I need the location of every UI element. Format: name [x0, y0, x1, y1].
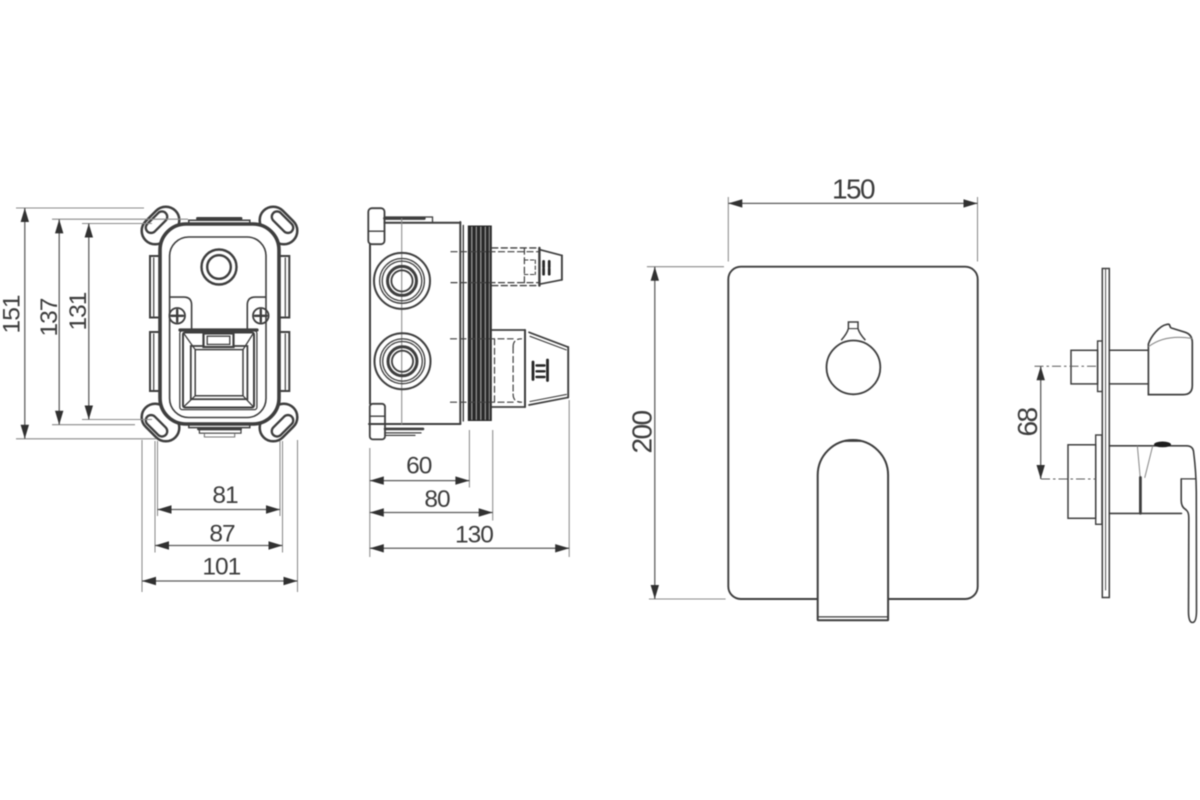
svg-text:137: 137 [36, 298, 63, 336]
svg-text:80: 80 [424, 486, 450, 513]
svg-text:130: 130 [455, 522, 493, 549]
svg-text:87: 87 [209, 521, 235, 548]
svg-text:101: 101 [202, 554, 240, 581]
svg-text:200: 200 [627, 411, 658, 454]
svg-text:131: 131 [65, 292, 92, 330]
svg-text:68: 68 [1012, 408, 1043, 437]
svg-text:60: 60 [406, 453, 432, 480]
svg-text:150: 150 [832, 174, 875, 205]
svg-text:151: 151 [0, 295, 26, 333]
svg-text:81: 81 [212, 482, 238, 509]
